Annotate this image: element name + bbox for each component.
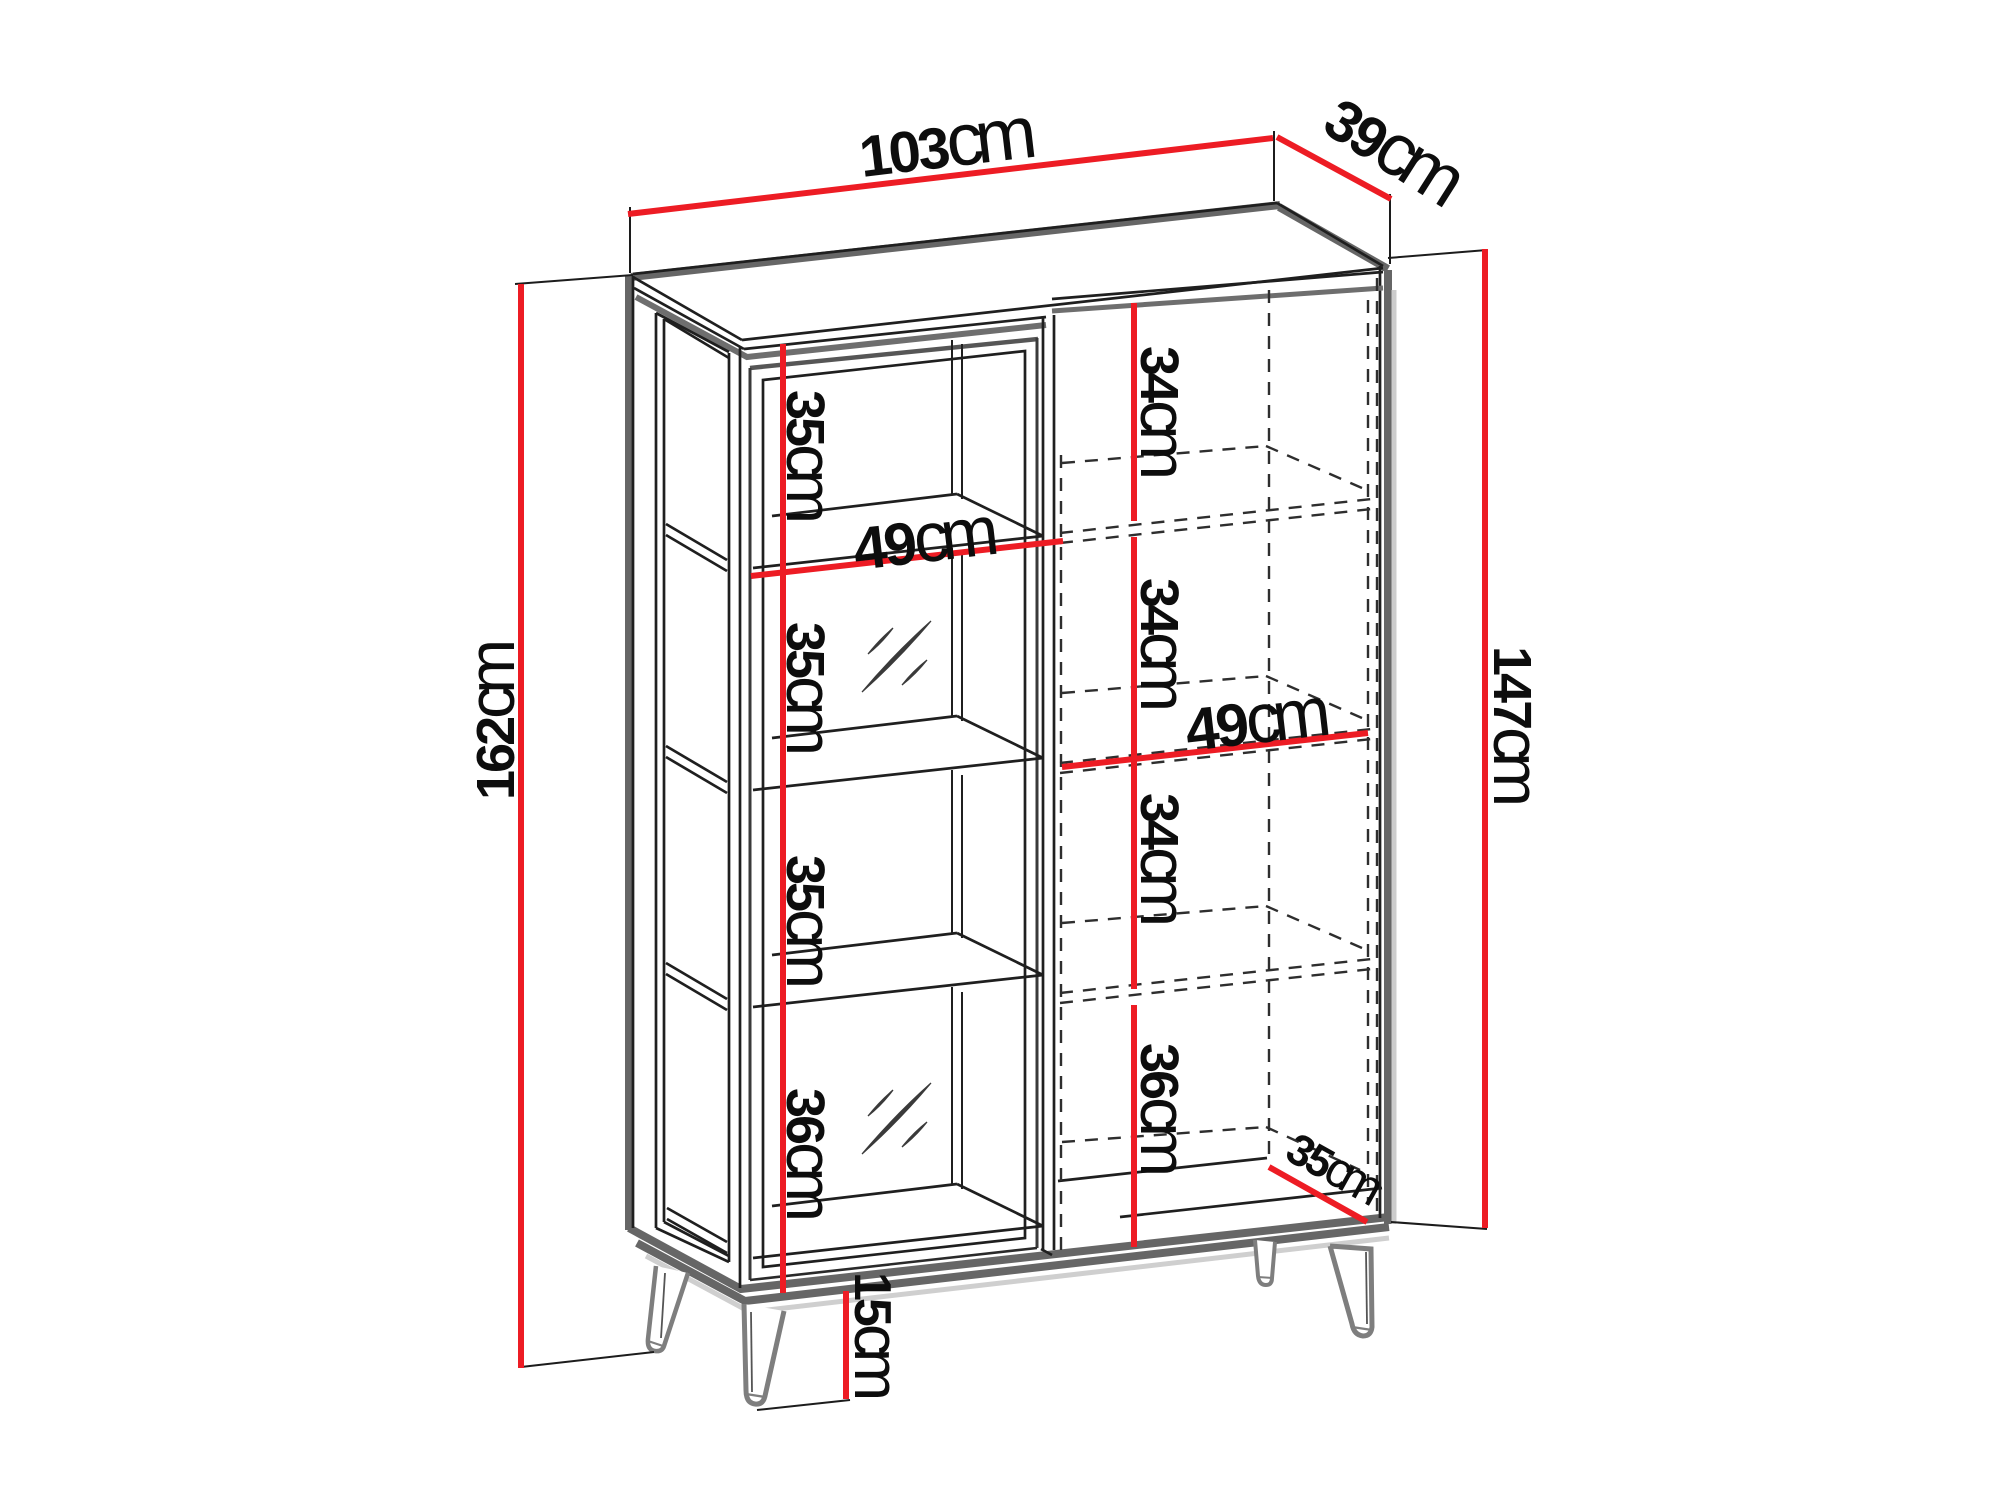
svg-text:35cm: 35cm <box>773 855 847 985</box>
svg-text:162cm: 162cm <box>454 643 528 800</box>
svg-text:35cm: 35cm <box>773 390 847 520</box>
svg-text:34cm: 34cm <box>1127 346 1201 476</box>
svg-text:36cm: 36cm <box>1127 1043 1201 1173</box>
svg-text:147cm: 147cm <box>1480 646 1554 803</box>
svg-text:34cm: 34cm <box>1127 578 1201 708</box>
svg-text:35cm: 35cm <box>773 622 847 752</box>
svg-text:36cm: 36cm <box>773 1088 847 1218</box>
svg-text:34cm: 34cm <box>1127 793 1201 923</box>
